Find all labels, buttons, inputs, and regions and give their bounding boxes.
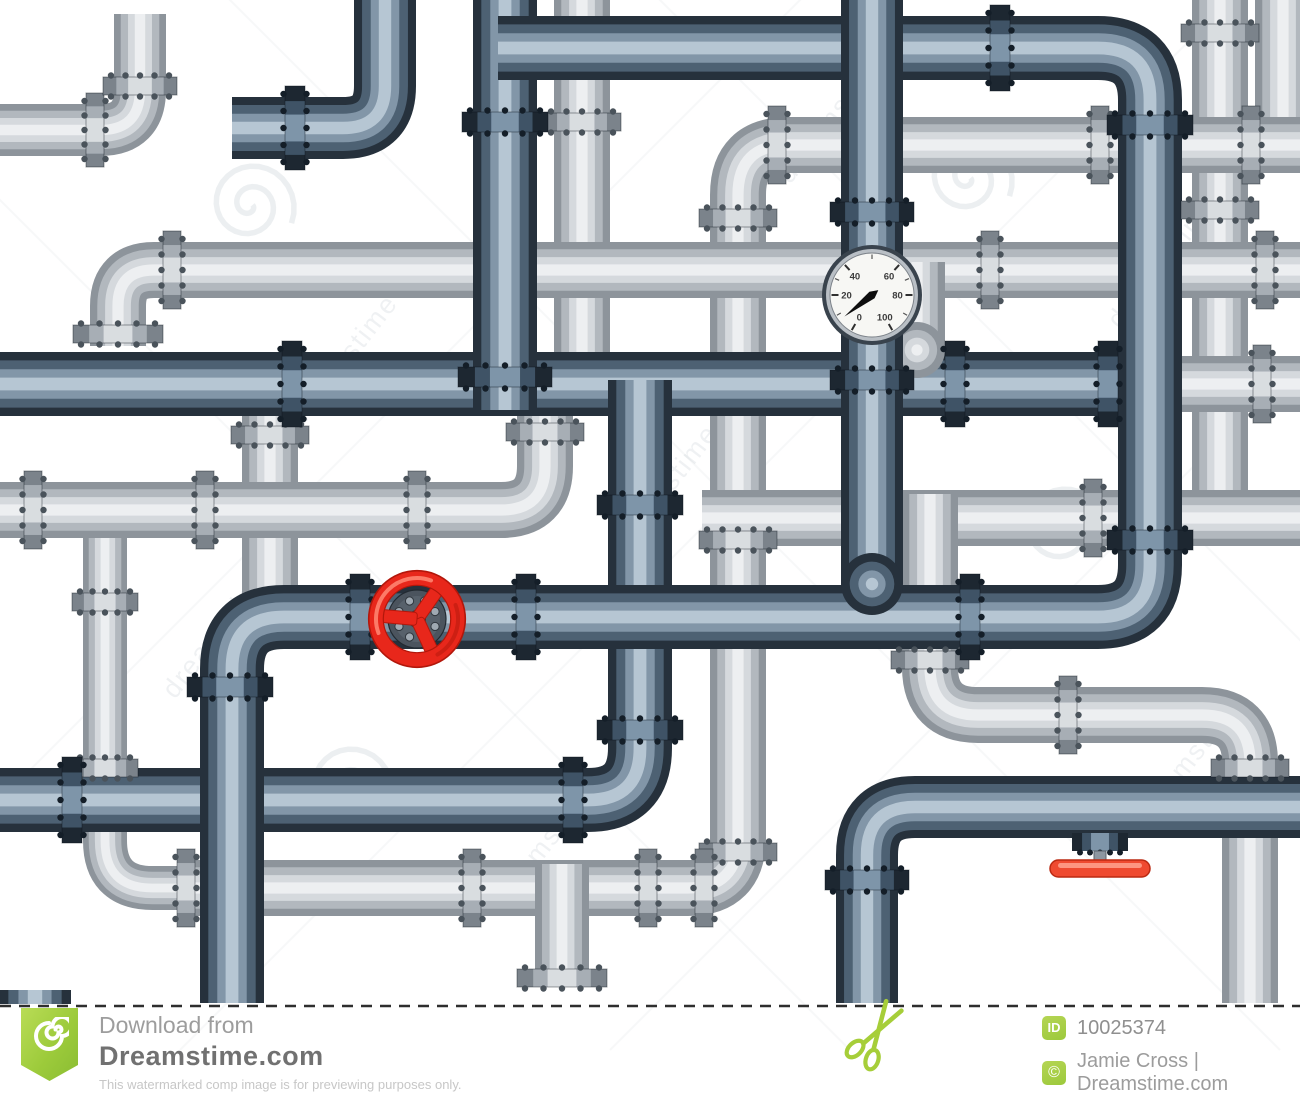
pipe-flange — [511, 574, 540, 660]
stock-image-preview-page: dreamstimedreamstimedreamstimedreamstime… — [0, 0, 1300, 1094]
download-from-label: Download from — [99, 1013, 461, 1039]
pipe-flange — [985, 5, 1014, 91]
pipe-flange — [1107, 110, 1193, 139]
watermark-disclaimer: This watermarked comp image is for previ… — [99, 1078, 461, 1093]
pipe-flange — [955, 574, 984, 660]
id-badge-icon: ID — [1042, 1016, 1066, 1040]
pressure-gauge: 020406080100 — [822, 245, 922, 345]
site-name: Dreamstime.com — [99, 1041, 461, 1071]
svg-text:40: 40 — [850, 272, 861, 283]
red-lever-valve — [1050, 833, 1150, 877]
pipe-flange — [57, 757, 86, 843]
pipe-flange — [72, 588, 138, 615]
pipe-flange — [277, 341, 306, 427]
pipe-flange — [830, 365, 914, 394]
pipe-flange — [73, 320, 163, 347]
pipe-maze-illustration: dreamstimedreamstimedreamstimedreamstime… — [0, 0, 1300, 1094]
pipe-flange — [187, 672, 273, 701]
pipe-flange — [597, 490, 683, 519]
credit-row: © Jamie Cross | Dreamstime.com — [1042, 1050, 1300, 1094]
watermark-footer: Download from Dreamstime.com This waterm… — [99, 1013, 461, 1093]
pipe-flange — [830, 197, 914, 226]
svg-text:80: 80 — [892, 291, 903, 302]
red-handwheel-valve — [369, 571, 466, 668]
svg-text:20: 20 — [841, 291, 852, 302]
pipe-light-topleft-elbow — [0, 14, 140, 130]
pipe-flange — [558, 757, 587, 843]
svg-text:60: 60 — [884, 272, 895, 283]
pipe-flange — [940, 341, 969, 427]
credit-value: Jamie Cross | Dreamstime.com — [1077, 1050, 1300, 1094]
svg-text:100: 100 — [877, 313, 893, 324]
scissors-icon — [842, 996, 909, 1073]
pipe-flange — [458, 362, 552, 391]
pipe-flange — [1107, 525, 1193, 554]
logo-spiral-icon — [29, 1017, 69, 1057]
image-id-row: ID 10025374 — [1042, 1016, 1166, 1040]
image-id-value: 10025374 — [1077, 1017, 1166, 1040]
pipe-flange — [280, 86, 309, 170]
copyright-badge-icon: © — [1042, 1061, 1066, 1085]
pipe-flange — [517, 964, 607, 991]
pipe-flange — [825, 865, 909, 894]
pipe-flange — [1093, 341, 1122, 427]
svg-text:0: 0 — [857, 313, 862, 324]
pipe-flange — [597, 715, 683, 744]
pipe-flange — [462, 107, 548, 136]
